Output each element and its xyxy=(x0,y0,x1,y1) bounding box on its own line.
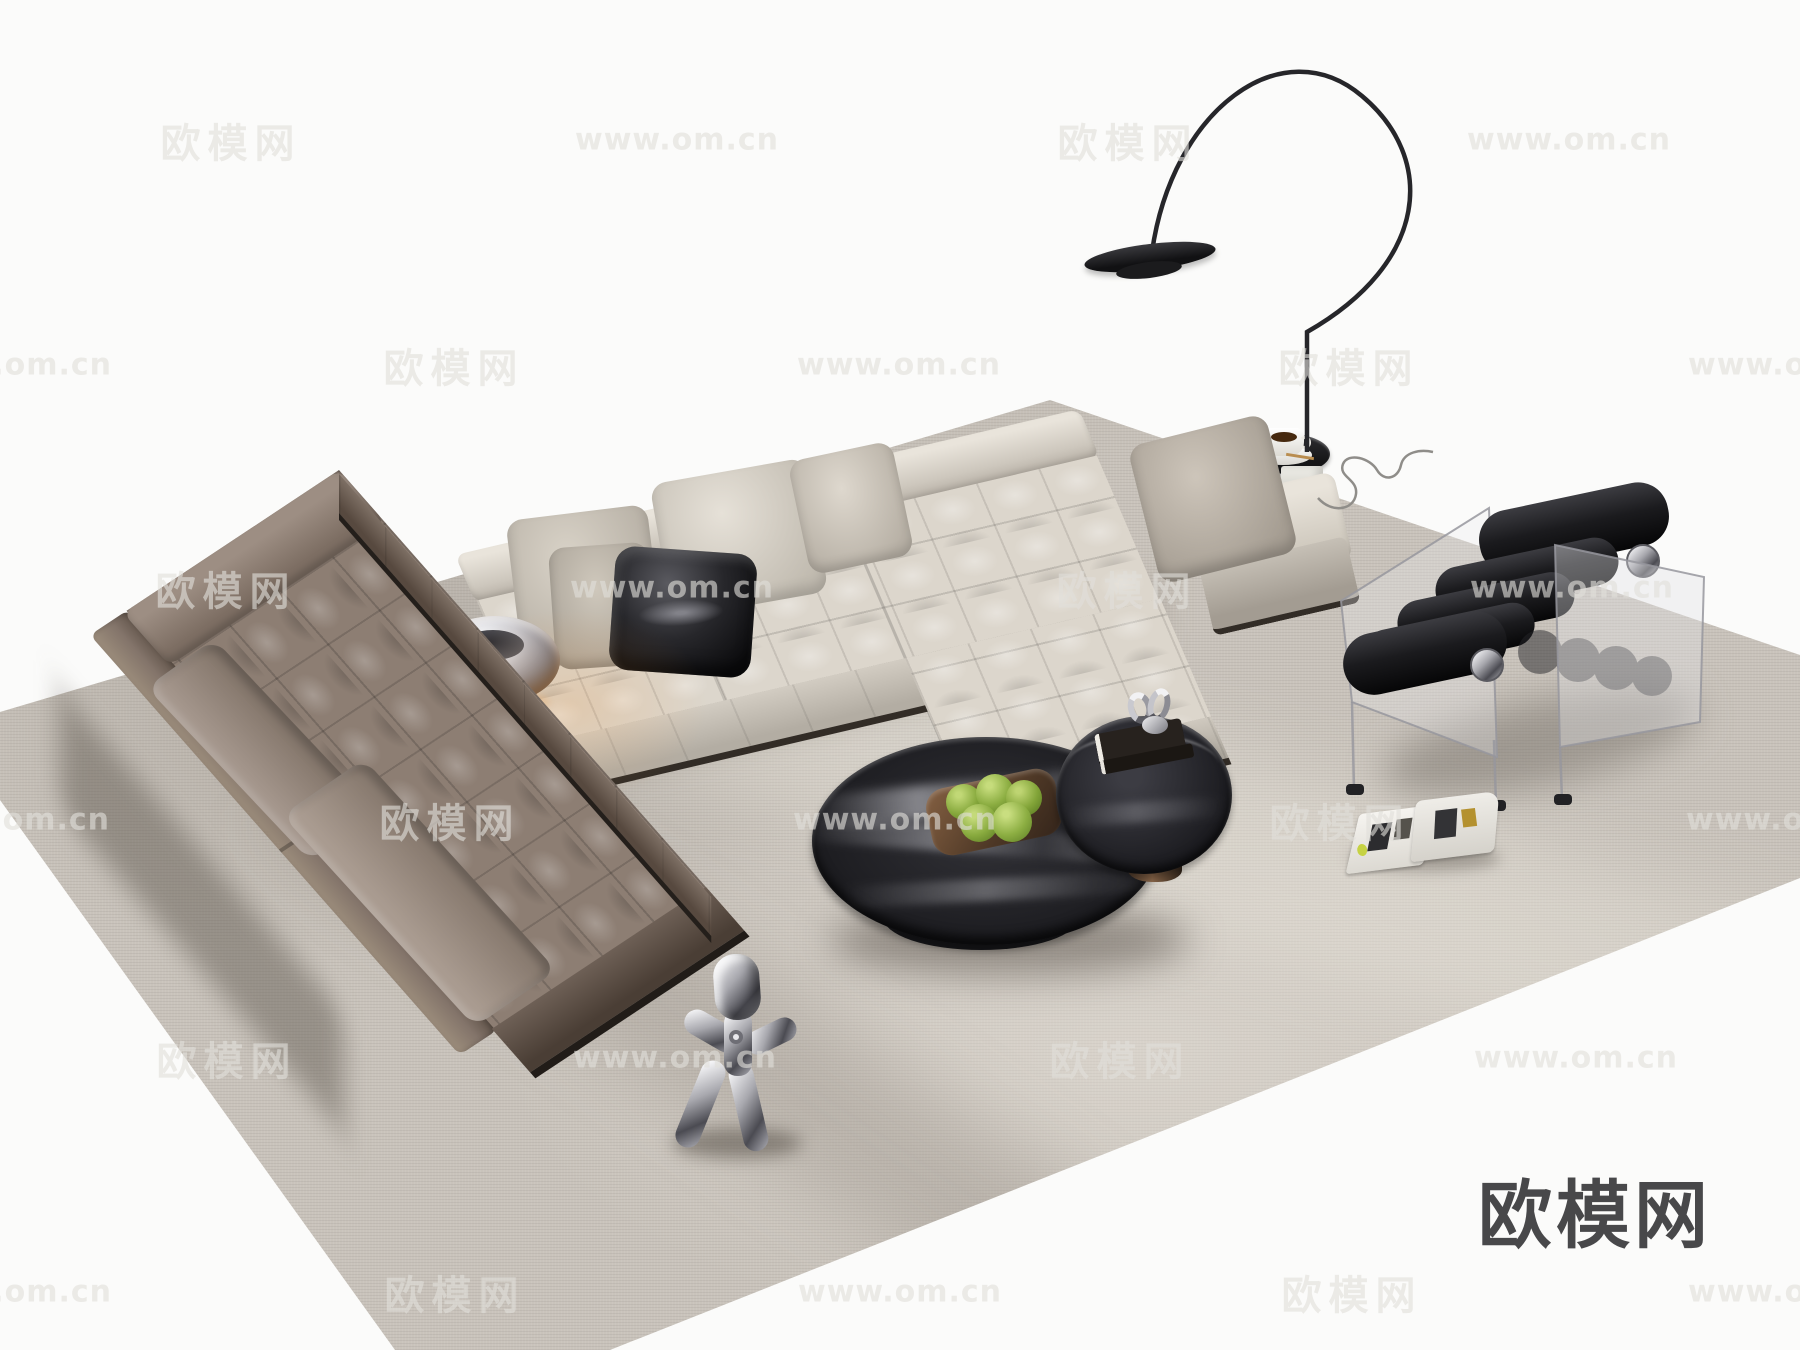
watermark-brand-text: 欧模网 xyxy=(380,791,521,849)
watermark-brand-text: 欧模网 xyxy=(385,1263,526,1321)
watermark-url-text: www.om.cn xyxy=(0,348,112,383)
watermark-url-text: www.om.cn xyxy=(1470,571,1674,606)
watermark-url-text: www.om.cn xyxy=(1688,1275,1800,1310)
watermark-brand-text: 欧模网 xyxy=(1058,111,1199,169)
watermark-url-text: www.om.cn xyxy=(1688,348,1800,383)
watermark-brand-text: 欧模网 xyxy=(1270,791,1411,849)
watermark-url-text: www.om.cn xyxy=(573,1041,777,1076)
watermark-brand-text: 欧模网 xyxy=(1057,559,1198,617)
watermark-url-text: www.om.cn xyxy=(0,803,110,838)
watermark-url-text: www.om.cn xyxy=(0,1275,112,1310)
watermark-brand-text: 欧模网 xyxy=(1050,1029,1191,1087)
watermark-brand-text: 欧模网 xyxy=(157,1029,298,1087)
watermark-url-text: www.om.cn xyxy=(1474,1041,1678,1076)
watermark-brand-text: 欧模网 xyxy=(156,559,297,617)
watermark-brand-text: 欧模网 xyxy=(384,336,525,394)
watermark-url-text: www.om.cn xyxy=(575,123,779,158)
watermark-url-text: www.om.cn xyxy=(570,571,774,606)
watermark-url-text: www.om.cn xyxy=(1467,123,1671,158)
watermark-brand-text: 欧模网 xyxy=(1279,336,1420,394)
watermark-brand-text: 欧模网 xyxy=(161,111,302,169)
watermark-url-text: www.om.cn xyxy=(793,803,997,838)
furniture-render-canvas: 欧模网www.om.cn欧模网www.om.cnwww.om.cn欧模网www.… xyxy=(0,0,1800,1350)
watermark-brand-text: 欧模网 xyxy=(1282,1263,1423,1321)
site-logo: 欧模网 xyxy=(1478,1156,1698,1263)
watermark-url-text: www.om.cn xyxy=(798,1275,1002,1310)
watermark-url-text: www.om.cn xyxy=(1686,803,1800,838)
watermark-url-text: www.om.cn xyxy=(797,348,1001,383)
watermark-layer: 欧模网www.om.cn欧模网www.om.cnwww.om.cn欧模网www.… xyxy=(0,0,1800,1350)
